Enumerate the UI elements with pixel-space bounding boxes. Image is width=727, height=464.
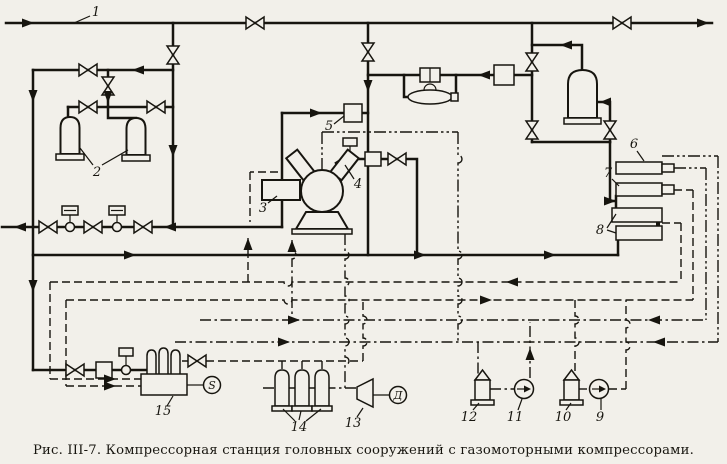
gate-valve-icon [388, 153, 406, 165]
figure-caption: Рис. III-7. Компрессорная станция головн… [0, 443, 727, 458]
apparatus5-icon [344, 104, 362, 122]
gate-valve-icon [246, 17, 264, 29]
generator-letter: S [208, 379, 216, 392]
meter-box-icon [494, 65, 514, 85]
flow-arrow-icon [648, 316, 660, 325]
flow-arrow-icon [653, 338, 665, 347]
part-label-6: 6 [630, 137, 638, 152]
flow-arrow-icon [14, 223, 26, 232]
part-label-3: 3 [259, 201, 267, 216]
cooler-section-icon [616, 162, 674, 174]
gate-valve-icon [604, 121, 616, 139]
cooler6-line-inner [674, 168, 706, 320]
flow-arrow-icon [132, 66, 144, 75]
gate-valve-icon [39, 221, 57, 233]
flow-arrow-icon [600, 98, 611, 107]
part-label-2: 2 [92, 165, 101, 180]
part-label-12: 12 [461, 410, 478, 425]
flow-arrow-icon [244, 238, 253, 250]
flow-arrow-icon [506, 278, 518, 287]
flow-arrow-icon [164, 223, 176, 232]
gas-bottle-icon [292, 370, 312, 411]
gate-valve-icon [613, 17, 631, 29]
flow-arrow-icon [364, 80, 373, 92]
tank10-feed [575, 300, 579, 377]
cooler-section-icon [616, 183, 674, 196]
starting-gas-line [182, 300, 367, 370]
gate-valve-icon [188, 355, 206, 367]
flow-arrow-icon [104, 91, 113, 103]
gate-valve-icon [167, 46, 179, 64]
gas-bottle-icon [272, 370, 292, 411]
equipment: S Д [56, 65, 674, 411]
flow-arrow-icon [22, 19, 34, 28]
part-label-4: 4 [353, 177, 362, 192]
compressor-icon [262, 150, 359, 234]
flow-arrow-icon [278, 338, 290, 347]
flow-arrow-icon [288, 316, 300, 325]
flow-arrow-icon [560, 41, 572, 50]
flow-arrow-icon [544, 251, 556, 260]
flow-arrow-icon [288, 240, 297, 252]
separator-vessel-icon [122, 118, 150, 161]
compressor-drain-drop [345, 234, 349, 388]
flow-arrow-icon [29, 90, 38, 102]
flow-arrow-icon [697, 19, 709, 28]
oil-tank-icon [560, 370, 583, 405]
water-header-1 [50, 282, 681, 286]
part-label-1: 1 [92, 5, 100, 20]
gate-valve-icon [84, 221, 102, 233]
gate-valve-icon [147, 101, 165, 113]
flow-arrow-icon [478, 71, 490, 80]
flow-arrow-icon [169, 145, 178, 157]
flow-arrow-icon [124, 251, 136, 260]
gate-valve-icon [526, 121, 538, 139]
part-label-14: 14 [291, 420, 308, 435]
separator-vessel-icon [564, 70, 601, 124]
cooler6-line-outer [662, 156, 718, 342]
part-label-10: 10 [555, 410, 572, 425]
flow-arrow-icon [480, 296, 492, 305]
part-label-9: 9 [596, 410, 604, 425]
gate-valve-icon [362, 43, 374, 61]
flow-arrow-icon [104, 382, 116, 391]
motor-letter: Д [393, 389, 404, 402]
part-label-8: 8 [596, 223, 604, 238]
flow-arrow-icon [29, 280, 38, 292]
gate-valve-icon [66, 364, 84, 376]
discharge-box-icon [365, 152, 381, 166]
engine-generator-icon: S [141, 348, 221, 395]
figure-page: S Д [0, 0, 727, 464]
separator-vessel-icon [56, 117, 84, 160]
flow-arrow-icon [310, 109, 322, 118]
cooler8-line [662, 223, 681, 282]
gate-valve-icon [134, 221, 152, 233]
gas-bottle-icon [312, 370, 332, 411]
compressor-station-schematic: S Д [0, 0, 727, 436]
gas-pipelines [2, 23, 712, 370]
oil-tank-icon [471, 370, 494, 405]
part-label-5: 5 [325, 119, 333, 134]
flow-arrow-icon [526, 348, 535, 360]
control-valve-icon [119, 348, 133, 375]
cooler-section-icon [612, 208, 662, 240]
vessel-top-line [532, 45, 582, 70]
flow-meter-icon [408, 84, 458, 104]
cooler7-line [674, 190, 693, 300]
pump-icon [515, 380, 534, 399]
part-label-11: 11 [507, 410, 524, 425]
flow-arrows [14, 19, 709, 391]
part-label-15: 15 [155, 404, 172, 419]
flow-arrow-icon [414, 251, 426, 260]
fan-icon: Д [357, 379, 407, 407]
water-header-2 [66, 300, 693, 304]
pump-icon [590, 380, 609, 399]
part-label-7: 7 [604, 166, 613, 181]
gate-valve-icon [526, 53, 538, 71]
gate-valve-icon [79, 64, 97, 76]
pump9-riser [609, 300, 630, 389]
part-label-13: 13 [345, 416, 362, 431]
gate-valve-icon [79, 101, 97, 113]
